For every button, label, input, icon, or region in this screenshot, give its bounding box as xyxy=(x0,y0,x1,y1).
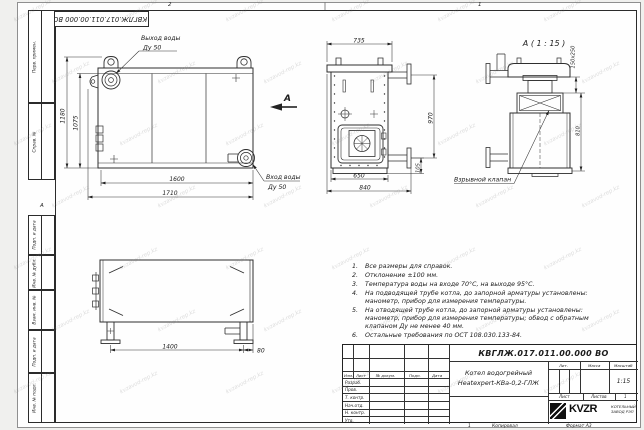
margin-box-inv-dubl: Инв. № дубл. xyxy=(28,255,55,290)
tb-header-data: Дата xyxy=(432,373,442,378)
note-item: 1.Все размеры для справок. xyxy=(352,263,614,271)
tb-lit-label: Лит. xyxy=(559,363,568,368)
footer-format-label: Формат А3 xyxy=(566,424,592,429)
margin-box-sprav-no: Справ. № xyxy=(28,103,55,180)
tb-header-docnum: № докум. xyxy=(376,373,395,378)
note-item: 3.Температура воды на входе 70°С, на вых… xyxy=(352,281,614,289)
zone-letter-a: А xyxy=(40,203,44,209)
note-item: 4.На подводящей трубе котла, до запорной… xyxy=(352,290,614,307)
notes-block: 1.Все размеры для справок. 2.Отклонение … xyxy=(352,263,614,341)
note-item: 5.На отводящей трубе котла, до запорной … xyxy=(352,307,614,332)
note-item: 2.Отклонение ±100 мм. xyxy=(352,272,614,280)
footer-number: 1 xyxy=(468,424,471,429)
zone-number-2: 2 xyxy=(168,2,172,8)
tb-scale-value: 1:15 xyxy=(609,370,638,392)
tb-product-name: Котел водогрейный Heatexpert-КВа-0,2-ГЛЖ xyxy=(449,362,548,395)
margin-box-inv-podl: Инв. № подл. xyxy=(28,373,55,423)
tb-massa-label: Масса xyxy=(588,363,600,368)
margin-box-perv-primen: Перв. примен. xyxy=(28,10,55,103)
note-item: 6.Остальные требования по ОСТ 108.030.13… xyxy=(352,332,614,340)
tb-header-podp: Подп. xyxy=(409,373,421,378)
margin-box-podp-data-1: Подп. и дата xyxy=(28,215,55,255)
kvzr-logo-text: KVZR xyxy=(569,403,597,415)
tb-doc-number: КВГЛЖ.017.011.00.000 ВО xyxy=(449,345,638,361)
tb-sheets-label: Листов xyxy=(591,394,607,399)
tb-header-list: Лист xyxy=(356,373,366,378)
tb-row-prov: Пров. xyxy=(345,387,357,392)
corner-stamp-docnumber: КВГЛЖ.017.011.00.000 ВО xyxy=(53,15,147,23)
corner-stamp: КВГЛЖ.017.011.00.000 ВО xyxy=(53,11,149,27)
tb-row-tkontr: Т. контр. xyxy=(345,395,364,400)
tb-header-izm: Изм. xyxy=(344,373,353,378)
tb-sheets-value: 1 xyxy=(624,394,627,399)
tb-sheet-label: Лист xyxy=(559,394,570,399)
footer-copied-label: Копировал xyxy=(492,424,518,429)
tb-row-razrab: Разраб. xyxy=(345,380,361,385)
tb-row-nkontr: Н. контр. xyxy=(345,410,365,415)
tb-masshtab-label: Масштаб xyxy=(614,363,633,368)
zone-number-1: 1 xyxy=(478,2,482,8)
margin-box-vzam-inv: Взам. инв. № xyxy=(28,290,55,330)
tb-row-utv: Утв. xyxy=(345,418,354,423)
margin-box-podp-data-2: Подп. и дата xyxy=(28,330,55,373)
tb-row-nachotd: Нач.отд. xyxy=(345,403,364,408)
kvzr-logo-icon xyxy=(550,403,566,419)
tb-company: КОТЕЛЬНЫЙ ЗАВОД РЭП xyxy=(611,405,636,415)
title-block: Изм. Лист № докум. Подп. Дата Разраб. Пр… xyxy=(342,344,637,423)
